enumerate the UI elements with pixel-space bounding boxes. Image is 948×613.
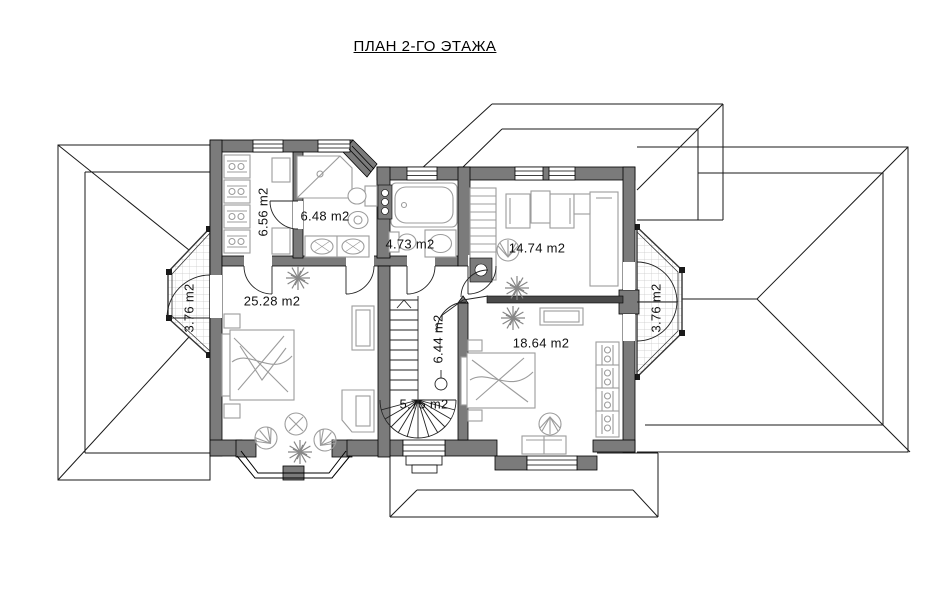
bedroom-table (540, 308, 583, 325)
window (403, 440, 445, 456)
room-area-label-balcony-left: 3.76 m2 (182, 283, 197, 332)
room-area-label-stairs: 5.75 m2 (399, 397, 448, 412)
room-area-label-balcony-right: 3.76 m2 (649, 283, 664, 332)
room-area-label-closet: 6.56 m2 (256, 187, 271, 236)
double-sink-vanity (305, 236, 369, 257)
shower-icon (297, 156, 352, 198)
dresser (352, 306, 374, 350)
room-area-label-study: 14.74 m2 (509, 241, 566, 256)
entry-step (406, 456, 442, 473)
window (527, 456, 577, 470)
study-shelving (470, 188, 496, 282)
bidet-icon (348, 212, 368, 229)
floor-plan-drawing (0, 0, 948, 613)
room-area-label-bath-small: 4.73 m2 (385, 237, 434, 252)
window (407, 167, 437, 180)
room-area-label-bath-big: 6.48 m2 (300, 209, 349, 224)
thin-wall-study-bedroom (487, 296, 623, 303)
study-sofa-set (506, 191, 574, 228)
bathtub-icon (391, 183, 457, 227)
bench (522, 436, 566, 454)
toilet-icon (348, 186, 377, 206)
room-area-label-hall: 6.44 m2 (431, 314, 446, 363)
plan-title: ПЛАН 2-ГО ЭТАЖА (300, 38, 550, 55)
floor-plan-page: ПЛАН 2-ГО ЭТАЖА 6.56 m2 6.48 m2 4.73 m2 … (0, 0, 948, 613)
window (318, 140, 350, 152)
window (253, 140, 283, 152)
round-table (285, 413, 307, 435)
towel-radiator (378, 185, 392, 219)
room-area-label-bedroom-right: 18.64 m2 (513, 336, 570, 351)
bedroom-wardrobes (596, 342, 619, 437)
desk (342, 390, 374, 432)
room-area-label-bedroom-left: 25.28 m2 (244, 294, 301, 309)
window-double (515, 167, 575, 180)
